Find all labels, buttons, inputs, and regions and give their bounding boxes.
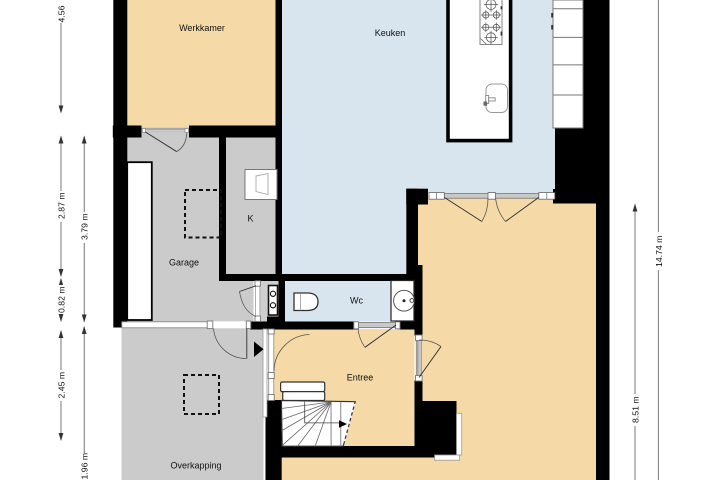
svg-text:Overkapping: Overkapping [170,461,221,471]
svg-text:0.82 m: 0.82 m [57,286,67,313]
svg-text:8.51 m: 8.51 m [631,396,641,423]
svg-text:14.74 m: 14.74 m [654,236,664,267]
svg-text:Keuken: Keuken [375,28,406,38]
svg-text:Werkkamer: Werkkamer [179,23,225,33]
svg-text:K: K [247,214,253,224]
svg-text:2.45 m: 2.45 m [57,372,67,399]
svg-text:3.79 m: 3.79 m [80,213,90,240]
svg-text:Wc: Wc [350,296,363,306]
svg-text:Garage: Garage [169,258,199,268]
svg-text:1.96 m: 1.96 m [80,453,90,480]
svg-text:Entree: Entree [347,373,374,383]
svg-text:2.87 m: 2.87 m [57,192,67,219]
svg-text:4.56: 4.56 [57,5,67,22]
